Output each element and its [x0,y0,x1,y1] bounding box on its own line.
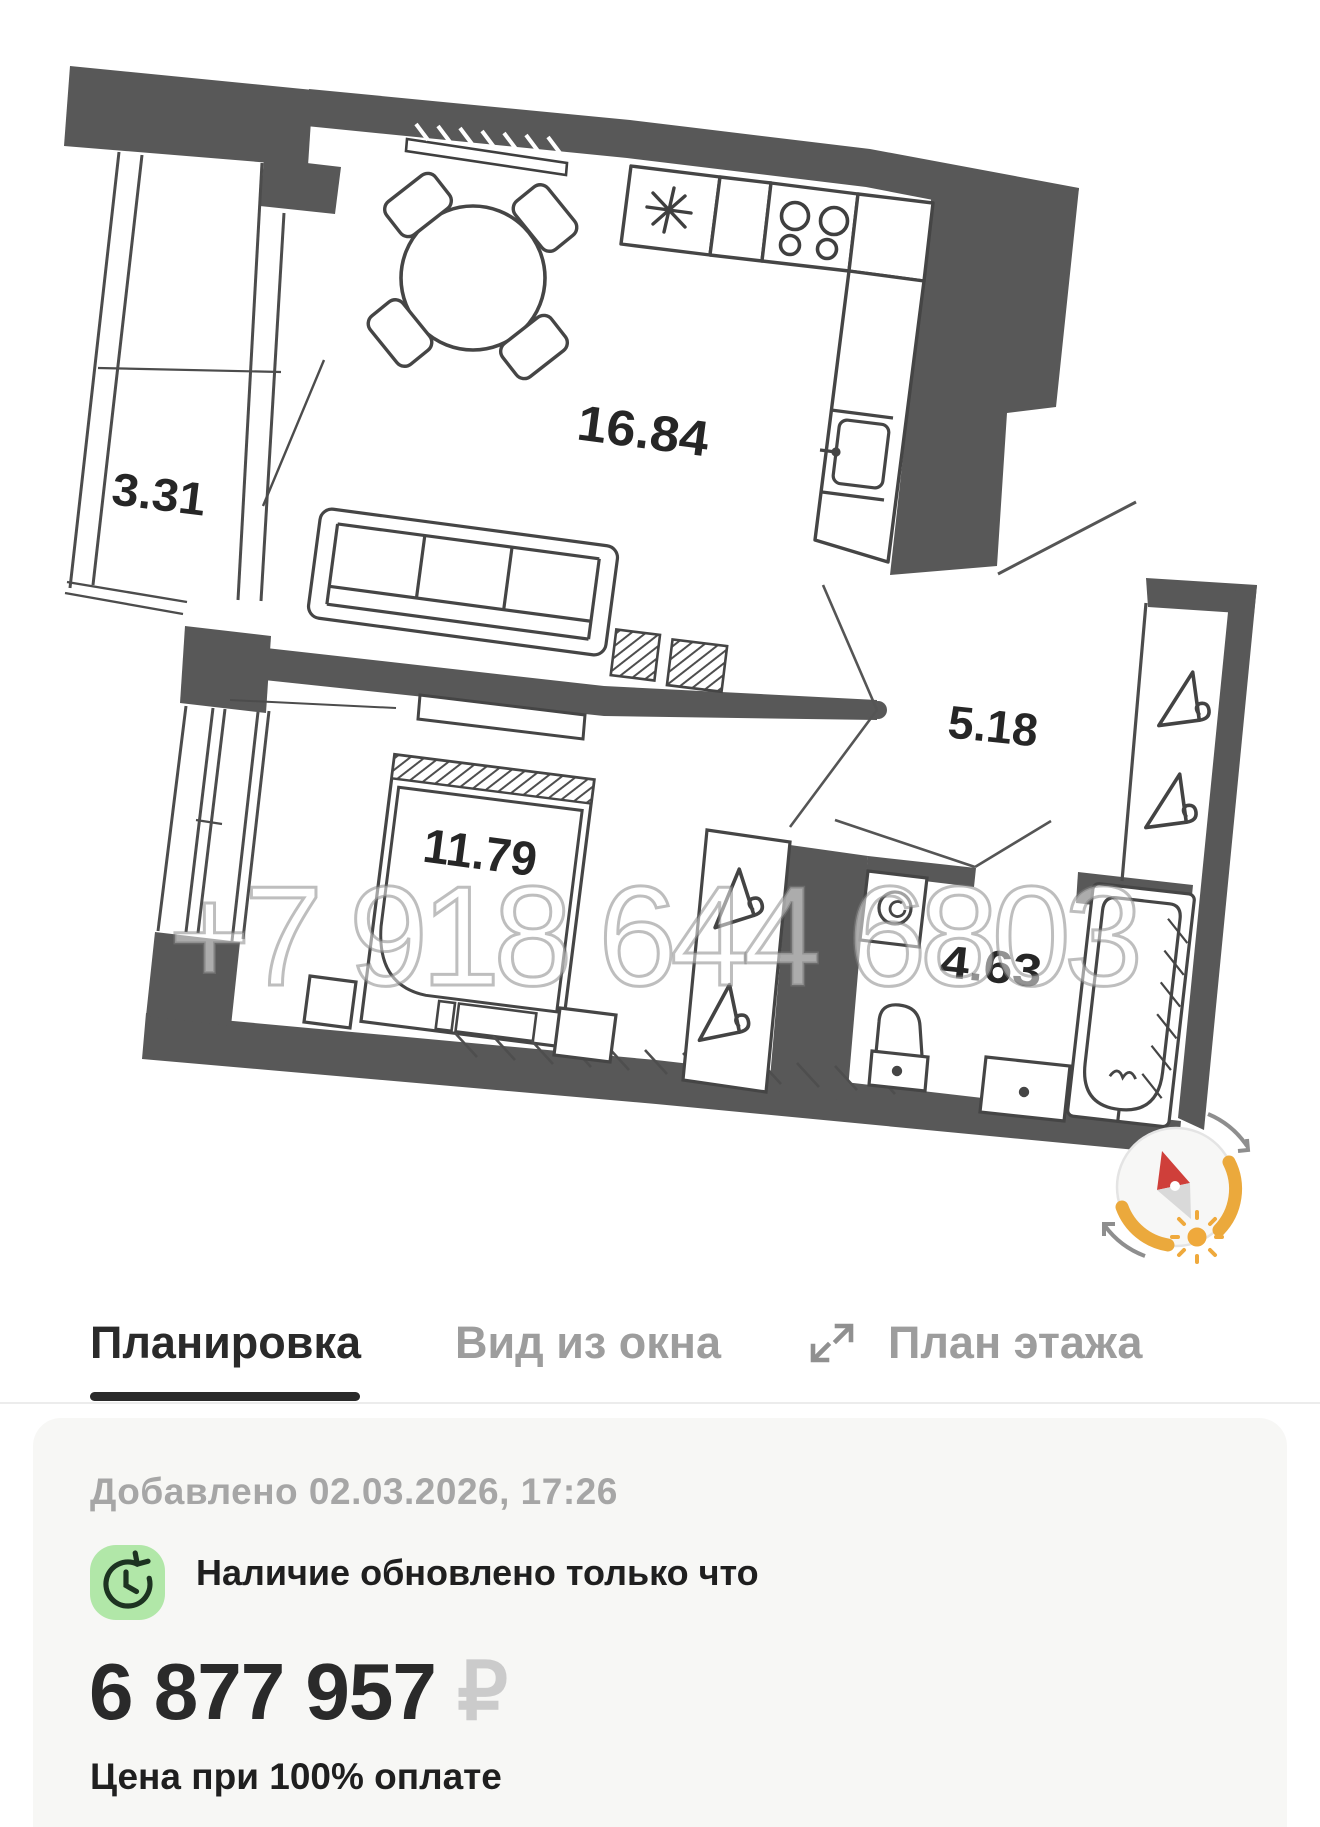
svg-text:+7 918 644 6803: +7 918 644 6803 [168,857,1143,1016]
svg-text:5.18: 5.18 [946,695,1041,756]
